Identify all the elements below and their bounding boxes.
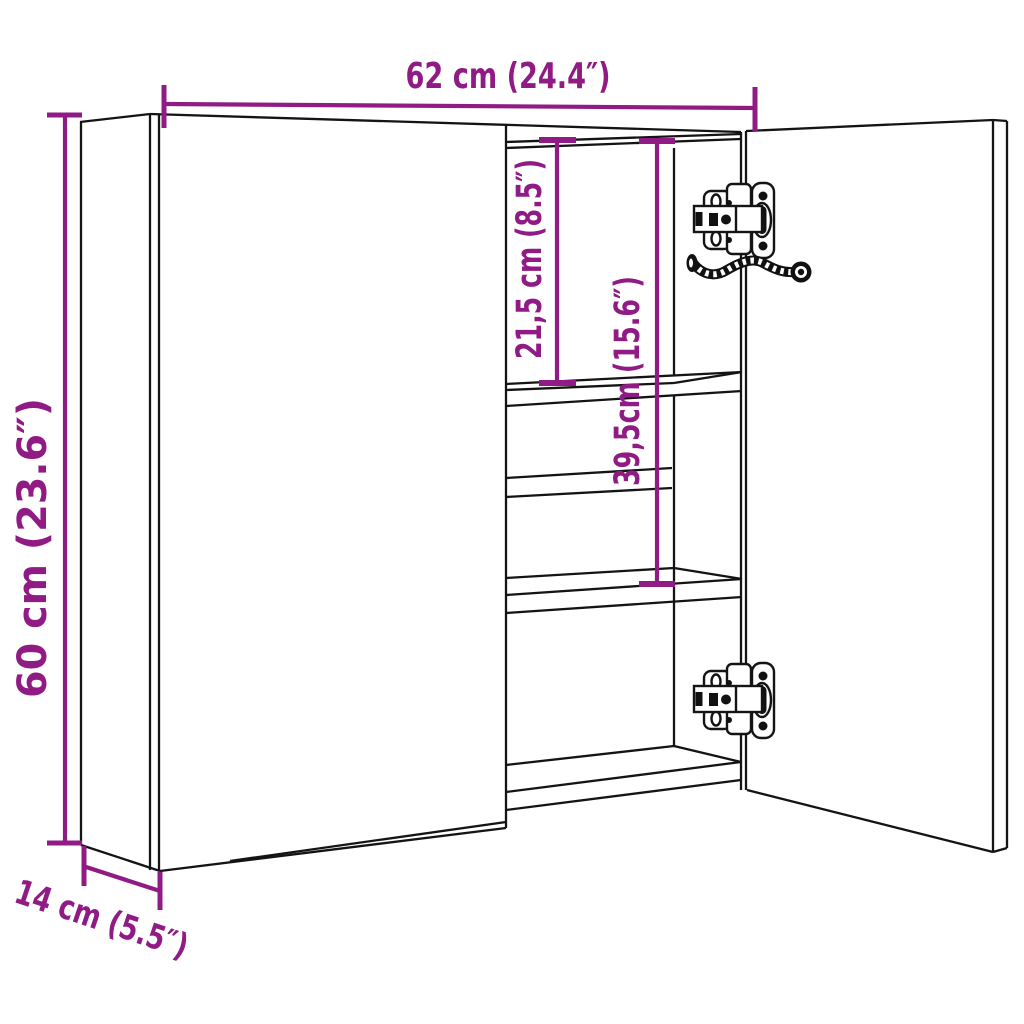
dimension-depth: 14 cm (5.5″) [10,846,193,967]
bottom-panel [506,746,741,810]
dimension-shelf-mid-gap: 39,5cm (15.6″) [608,141,675,584]
left-side-panel [80,114,160,871]
shelf-mid-gap-label: 39,5cm (15.6″) [608,276,648,486]
hinge-bottom-icon [694,663,774,738]
height-label: 60 cm (23.6″) [10,398,56,698]
depth-label: 14 cm (5.5″) [10,872,193,967]
diagram-canvas: 62 cm (24.4″) 60 cm (23.6″) 14 cm (5.5″)… [0,0,1024,1024]
cabinet-dimension-diagram: 62 cm (24.4″) 60 cm (23.6″) 14 cm (5.5″)… [0,0,1024,1024]
dimension-height: 60 cm (23.6″) [10,115,82,843]
left-door [150,114,741,871]
width-label: 62 cm (24.4″) [406,56,611,97]
power-cable-icon [687,254,812,283]
right-door [746,120,1007,852]
hinge-top-icon [694,183,774,258]
dimension-shelf-top-gap: 21,5 cm (8.5″) [510,140,576,383]
dimension-width: 62 cm (24.4″) [164,56,755,131]
dimensions: 62 cm (24.4″) 60 cm (23.6″) 14 cm (5.5″)… [10,56,755,967]
shelf-lower [506,568,742,613]
shelf-top-gap-label: 21,5 cm (8.5″) [510,159,550,359]
